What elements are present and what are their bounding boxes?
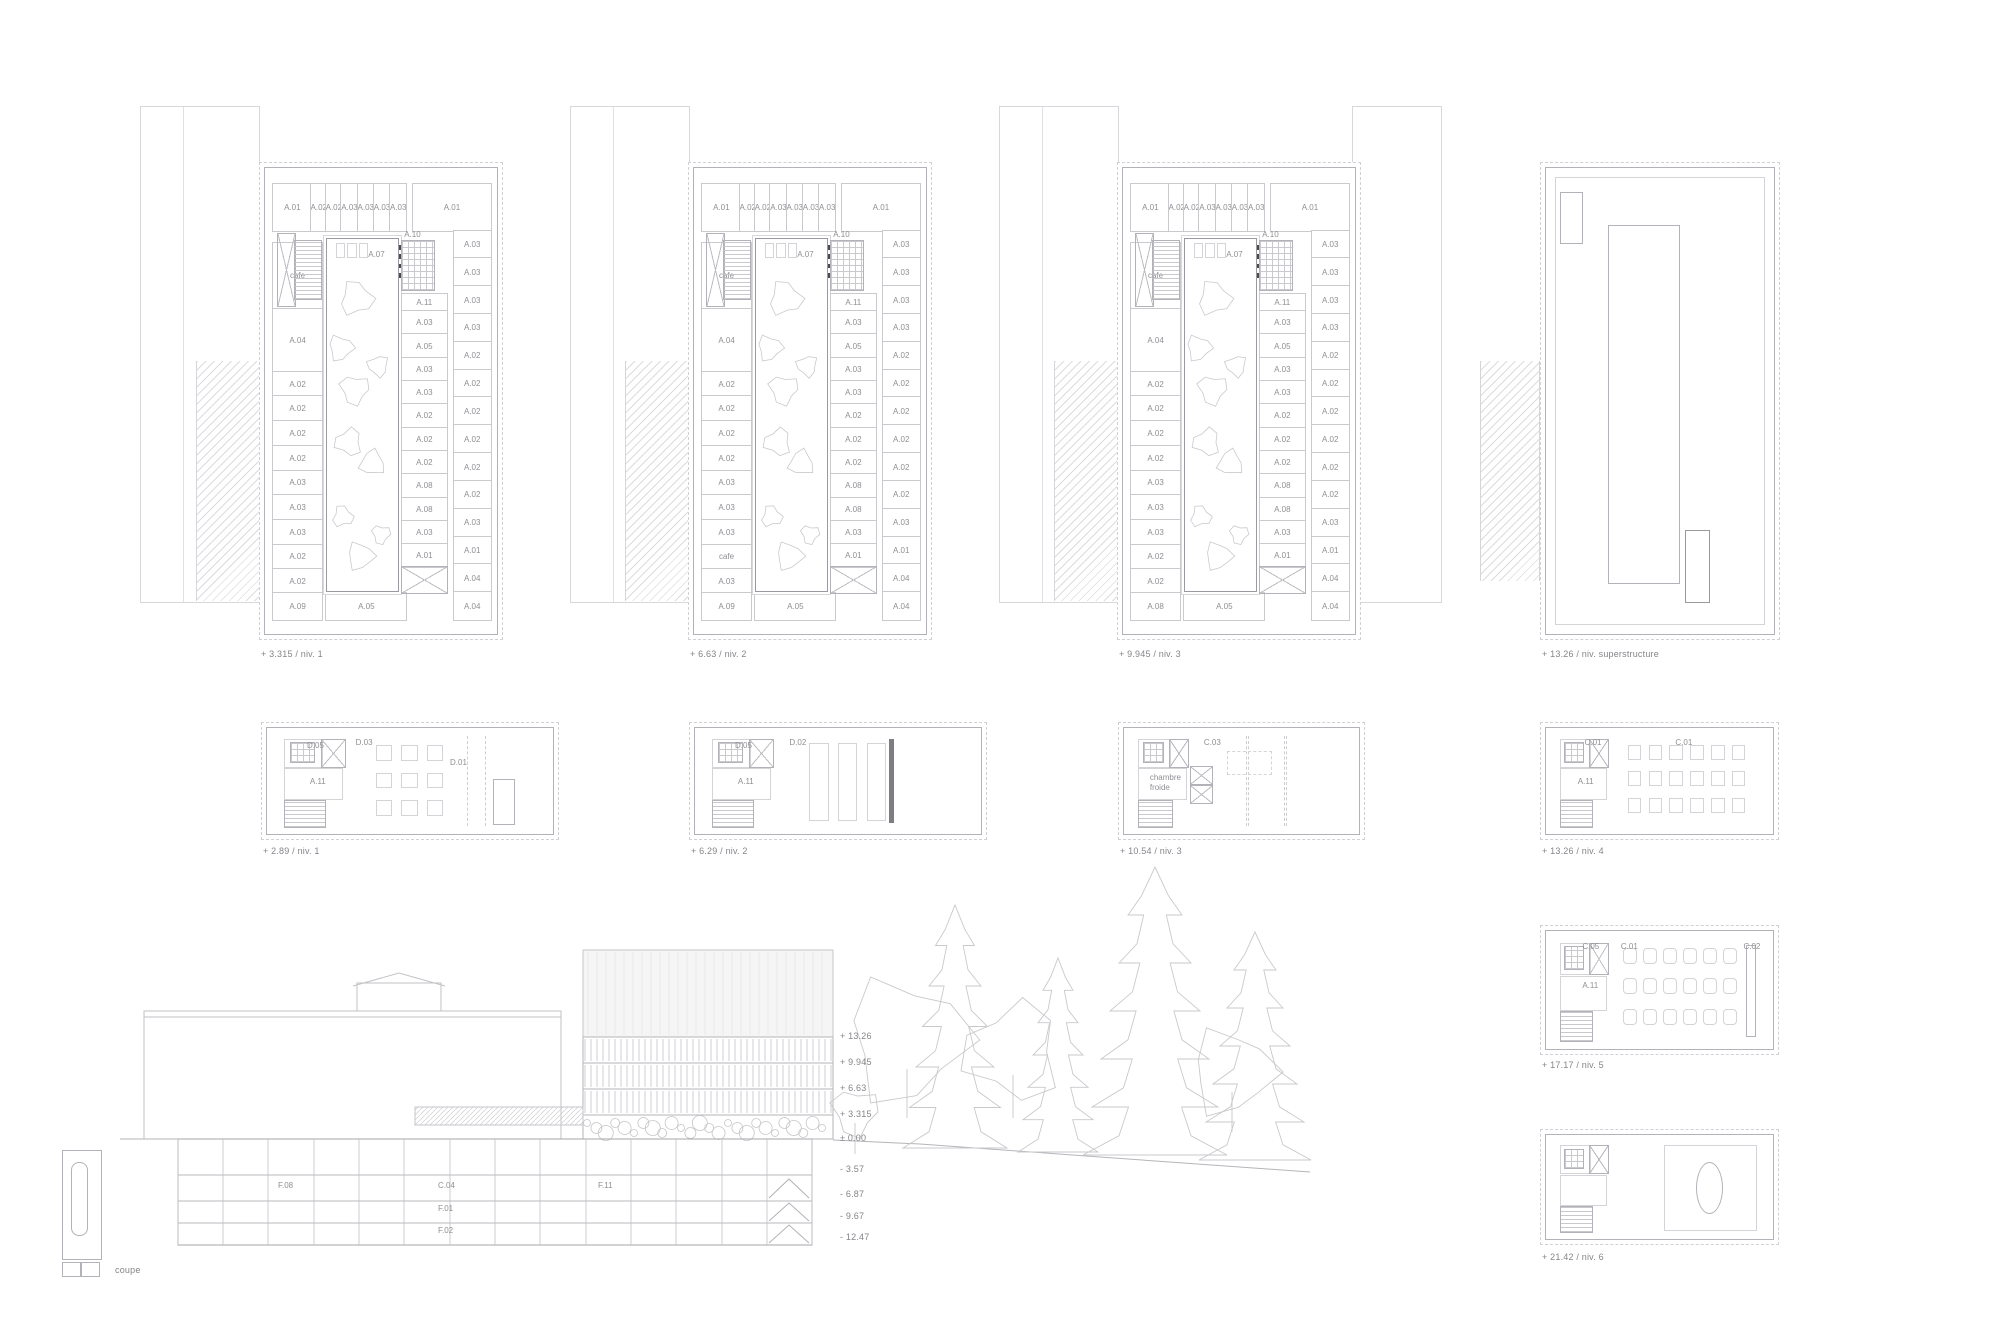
room: A.03 [272, 519, 322, 546]
room: A.03 [1130, 470, 1180, 497]
courtyard-trees [1185, 239, 1256, 591]
room: A.03 [882, 285, 921, 315]
room: A.01 [453, 536, 492, 566]
elevation-mark: + 13.26 [840, 1031, 872, 1041]
room: A.02 [453, 452, 492, 482]
plan-wall: C.05C.01C.02A.11 [1545, 930, 1774, 1050]
plan-wall: D.05D.02A.11 [694, 727, 982, 835]
plan-wall: C.03chambre froide [1123, 727, 1360, 835]
service-shaft [1746, 945, 1756, 1037]
service-shaft [493, 779, 515, 826]
table [1628, 745, 1641, 760]
room: A.02 [882, 369, 921, 399]
plan-caption: + 13.26 / niv. superstructure [1542, 649, 1659, 659]
table [1628, 771, 1641, 786]
basement-grid [178, 1139, 812, 1245]
room: A.03 [1311, 313, 1350, 343]
stair-core [1560, 800, 1594, 827]
room: A.03 [1130, 494, 1180, 521]
roof-courtyard-opening [1608, 225, 1680, 584]
room-label: D.05 [307, 741, 324, 750]
furniture [1194, 243, 1203, 257]
table [1643, 1009, 1657, 1025]
elevator-core [1259, 240, 1293, 291]
shelf [427, 800, 443, 816]
room: A.01 [1311, 536, 1350, 566]
room: A.02 [882, 424, 921, 454]
room: A.04 [272, 308, 322, 373]
room: A.03 [453, 285, 492, 315]
plan-caption: + 13.26 / niv. 4 [1542, 846, 1604, 856]
plan-caption: + 17.17 / niv. 5 [1542, 1060, 1604, 1070]
section-key-cell [62, 1262, 81, 1277]
door-marker [399, 245, 401, 250]
room: A.02 [272, 544, 322, 571]
stair-core [830, 566, 877, 594]
room: A.03 [272, 470, 322, 497]
room-label: C.01 [1585, 738, 1602, 747]
new-building-superstructure [583, 950, 833, 1037]
door-marker [1257, 254, 1259, 259]
plan-wall: C.01C.01A.11 [1545, 727, 1774, 835]
elevator-core [830, 240, 864, 291]
shelf [867, 743, 886, 821]
elevation-mark: ± 0.00 [840, 1133, 866, 1143]
room: A.02 [453, 480, 492, 510]
core-label: A.10 [833, 230, 849, 239]
deciduous-tree [961, 998, 1055, 1101]
room: A.03 [701, 519, 751, 546]
stair-core [723, 240, 751, 300]
plan-caption: + 9.945 / niv. 3 [1119, 649, 1181, 659]
context-hatch [1480, 361, 1540, 581]
furniture [359, 243, 368, 257]
door-marker [828, 245, 830, 250]
room: A.02 [401, 427, 448, 452]
room: A.02 [272, 445, 322, 472]
table [1649, 771, 1662, 786]
table [1643, 978, 1657, 994]
room: A.02 [272, 395, 322, 422]
table [1690, 798, 1703, 813]
room: A.02 [453, 424, 492, 454]
door-marker [1257, 273, 1259, 278]
plan-canvas: D.05D.03A.11D.01 [267, 728, 553, 834]
room: A.02 [882, 396, 921, 426]
shelf [376, 745, 392, 761]
plan-wall: A.01A.02A.02A.03A.03A.03A.03A.01cafeA.04… [264, 167, 498, 635]
room: A.03 [818, 183, 836, 232]
elevator-shaft [749, 739, 774, 769]
shelf [427, 773, 443, 789]
room-label: chambre froide [1150, 773, 1188, 793]
door-marker [1257, 245, 1259, 250]
plan-caption: + 21.42 / niv. 6 [1542, 1252, 1604, 1262]
room: A.02 [830, 403, 877, 428]
duct-zone [467, 736, 486, 825]
door-marker [828, 264, 830, 269]
plan-caption: + 6.63 / niv. 2 [690, 649, 747, 659]
stair-core [1138, 800, 1173, 827]
basement-room-label: F.11 [598, 1181, 613, 1190]
roof-stair-bulkhead [1685, 530, 1710, 603]
plan-canvas: A.01A.02A.02A.03A.03A.03A.03A.01cafeA.04… [265, 168, 497, 634]
table [1723, 1009, 1737, 1025]
room: A.02 [830, 450, 877, 475]
table [1628, 798, 1641, 813]
room: A.01 [272, 183, 312, 232]
table [1669, 771, 1682, 786]
core-plan-niv-6 [1540, 1129, 1779, 1245]
core-label: A.10 [1262, 230, 1278, 239]
table [1711, 745, 1724, 760]
elevator-shaft [1589, 1145, 1609, 1174]
room: A.02 [272, 420, 322, 447]
floor-plan-niv-2: A.01A.02A.02A.03A.03A.03A.03A.01cafeA.04… [688, 162, 932, 640]
table [1732, 798, 1745, 813]
room: A.05 [325, 592, 407, 621]
table [1711, 798, 1724, 813]
cold-room-unit [1190, 785, 1213, 804]
stair-core [1560, 1206, 1594, 1233]
room: A.01 [1270, 183, 1349, 232]
room: A.01 [412, 183, 491, 232]
furniture-grid [1564, 946, 1584, 969]
room: A.02 [1130, 420, 1180, 447]
room: A.03 [401, 310, 448, 335]
table [1703, 1009, 1717, 1025]
grid-line [1284, 736, 1287, 825]
room: A.04 [1311, 591, 1350, 621]
section-key-slot [71, 1162, 88, 1236]
room: A.02 [1311, 369, 1350, 399]
basement-chevrons [769, 1179, 809, 1243]
room: A.04 [1311, 563, 1350, 593]
table [1723, 948, 1737, 964]
plan-wall: A.01A.02A.02A.03A.03A.03A.03A.01cafeA.04… [693, 167, 927, 635]
room: A.04 [882, 591, 921, 621]
context-building-outline [1352, 106, 1442, 603]
elevator-core [401, 240, 435, 291]
elevation-mark: - 6.87 [840, 1189, 864, 1199]
room: A.03 [1311, 257, 1350, 287]
table [1669, 798, 1682, 813]
section-drawing [120, 840, 1360, 1270]
oval-table [1696, 1162, 1723, 1214]
room: A.08 [401, 473, 448, 498]
door-marker [828, 254, 830, 259]
room: A.01 [841, 183, 920, 232]
room: A.09 [701, 592, 751, 621]
room-label: A.11 [738, 777, 754, 786]
core-plan-niv-3: C.03chambre froide [1118, 722, 1365, 840]
furniture-label: A.07 [368, 250, 384, 259]
room: A.03 [882, 313, 921, 343]
room: A.02 [1311, 452, 1350, 482]
core-plan-niv-1: D.05D.03A.11D.01 [261, 722, 559, 840]
room: A.03 [701, 470, 751, 497]
table [1683, 978, 1697, 994]
room-label: D.05 [735, 741, 752, 750]
courtyard [1184, 238, 1257, 592]
room: A.03 [1130, 519, 1180, 546]
room: A.02 [830, 427, 877, 452]
shelf [809, 743, 828, 821]
plan-wall [1545, 1134, 1774, 1240]
layout-dashed [1227, 751, 1271, 774]
room: A.08 [830, 497, 877, 522]
room: A.02 [882, 480, 921, 510]
stair-core [712, 800, 754, 827]
furniture [1205, 243, 1214, 257]
room: A.04 [453, 591, 492, 621]
shelf [401, 773, 417, 789]
table [1703, 948, 1717, 964]
grid-line [1246, 736, 1249, 825]
furniture-grid [1564, 742, 1584, 763]
context-line [1042, 107, 1043, 602]
room: A.03 [453, 230, 492, 260]
core-plan-niv-5: C.05C.01C.02A.11 [1540, 925, 1779, 1055]
room-label: D.01 [450, 758, 467, 767]
room: A.02 [1130, 395, 1180, 422]
plan-wall: D.05D.03A.11D.01 [266, 727, 554, 835]
courtyard-trees [327, 239, 398, 591]
room: A.03 [1259, 357, 1306, 382]
room-label: A.11 [1582, 981, 1598, 990]
core-room [1560, 1175, 1607, 1206]
elevator-shaft [1169, 739, 1190, 769]
room: A.02 [272, 568, 322, 594]
deciduous-tree [854, 977, 980, 1103]
door-marker [399, 254, 401, 259]
room-label: C.01 [1621, 942, 1638, 951]
room: A.02 [1311, 480, 1350, 510]
trees [830, 867, 1311, 1160]
room: A.03 [453, 257, 492, 287]
room: A.02 [701, 395, 751, 422]
room: A.03 [401, 520, 448, 545]
furniture-grid [1143, 742, 1164, 763]
table [1703, 978, 1717, 994]
room: A.05 [830, 333, 877, 358]
room: A.03 [701, 568, 751, 594]
room: A.05 [1183, 592, 1265, 621]
table [1649, 745, 1662, 760]
room: A.02 [453, 369, 492, 399]
table [1690, 771, 1703, 786]
ground-line [120, 1139, 1310, 1172]
room: A.05 [754, 592, 836, 621]
plan-wall: A.01A.02A.02A.03A.03A.03A.03A.01cafeA.04… [1122, 167, 1356, 635]
section-key-cell [81, 1262, 100, 1277]
table [1711, 771, 1724, 786]
room: A.03 [401, 380, 448, 405]
room: A.03 [882, 508, 921, 538]
room: A.02 [453, 341, 492, 371]
stair-core [284, 800, 326, 827]
context-line [613, 107, 614, 602]
furniture-grid [1564, 1149, 1584, 1170]
core-plan-niv-4: C.01C.01A.11 [1540, 722, 1779, 840]
room: A.03 [882, 230, 921, 260]
room: A.02 [1130, 544, 1180, 571]
elevation-mark: + 6.63 [840, 1083, 866, 1093]
room-label: C.01 [1675, 738, 1692, 747]
furniture [765, 243, 774, 257]
furniture [336, 243, 345, 257]
room: A.01 [830, 543, 877, 568]
elevation-mark: + 3.315 [840, 1109, 872, 1119]
conifer-tree [1199, 932, 1311, 1160]
room: A.02 [701, 445, 751, 472]
room: A.02 [1130, 445, 1180, 472]
room: A.03 [830, 357, 877, 382]
room: A.08 [1259, 497, 1306, 522]
room: A.01 [1130, 183, 1170, 232]
furniture [347, 243, 356, 257]
table [1669, 745, 1682, 760]
table [1663, 978, 1677, 994]
conifer-tree [903, 905, 1007, 1148]
room: A.05 [1259, 333, 1306, 358]
room-label: C.02 [1743, 942, 1760, 951]
room: A.03 [830, 380, 877, 405]
shelf [427, 745, 443, 761]
elevation-mark: - 12.47 [840, 1232, 869, 1242]
core-plan-niv-2: D.05D.02A.11 [689, 722, 987, 840]
table [1683, 1009, 1697, 1025]
room: A.08 [830, 473, 877, 498]
room: A.02 [272, 371, 322, 398]
room: A.08 [1130, 592, 1180, 621]
cold-room-unit [1190, 766, 1213, 785]
room: A.03 [830, 310, 877, 335]
table [1683, 948, 1697, 964]
room: A.03 [453, 508, 492, 538]
room-label: A.11 [1578, 777, 1594, 786]
basement-room-label: F.02 [438, 1226, 453, 1235]
door-marker [828, 273, 830, 278]
stair-core [401, 566, 448, 594]
room: A.03 [401, 357, 448, 382]
room: A.03 [882, 257, 921, 287]
table [1732, 771, 1745, 786]
room: A.03 [1247, 183, 1265, 232]
dark-wall [889, 739, 894, 824]
room: A.03 [701, 494, 751, 521]
stair-core [1152, 240, 1180, 300]
courtyard-trees [756, 239, 827, 591]
room: A.03 [389, 183, 407, 232]
room: A.02 [882, 341, 921, 371]
room: A.02 [701, 420, 751, 447]
plan-canvas: A.01A.02A.02A.03A.03A.03A.03A.01cafeA.04… [1123, 168, 1355, 634]
plan-canvas: C.01C.01A.11 [1546, 728, 1773, 834]
door-marker [399, 264, 401, 269]
shelf [838, 743, 857, 821]
plan-canvas [1546, 1135, 1773, 1239]
room-label: A.11 [310, 777, 326, 786]
room: A.02 [1130, 568, 1180, 594]
room: A.03 [272, 494, 322, 521]
elevation-mark: - 3.57 [840, 1164, 864, 1174]
room-label: D.02 [789, 738, 806, 747]
floor-plan-niv-1: A.01A.02A.02A.03A.03A.03A.03A.01cafeA.04… [259, 162, 503, 640]
table [1649, 798, 1662, 813]
shelf [401, 800, 417, 816]
room: A.04 [453, 563, 492, 593]
room: A.03 [830, 520, 877, 545]
table [1623, 978, 1637, 994]
elevator-shaft [321, 739, 346, 769]
architectural-sheet: A.01A.02A.02A.03A.03A.03A.03A.01cafeA.04… [0, 0, 2000, 1333]
table [1690, 745, 1703, 760]
conifer-tree [1018, 958, 1098, 1152]
room: A.01 [401, 543, 448, 568]
context-line [183, 107, 184, 602]
room: A.02 [453, 396, 492, 426]
room: A.04 [882, 563, 921, 593]
stair-core [294, 240, 322, 300]
plan-canvas: D.05D.02A.11 [695, 728, 981, 834]
room: A.01 [882, 536, 921, 566]
furniture [1217, 243, 1226, 257]
furniture [776, 243, 785, 257]
room: A.02 [401, 403, 448, 428]
room: A.02 [1259, 450, 1306, 475]
room: A.03 [1311, 285, 1350, 315]
door-marker [1257, 264, 1259, 269]
context-hatch [625, 361, 689, 601]
room-label: C.03 [1204, 738, 1221, 747]
elevation-mark: + 9.945 [840, 1057, 872, 1067]
room: A.03 [1259, 520, 1306, 545]
stair-core [1259, 566, 1306, 594]
room: A.01 [1259, 543, 1306, 568]
plan-canvas: A.01A.02A.02A.03A.03A.03A.03A.01cafeA.04… [694, 168, 926, 634]
plan-canvas: C.05C.01C.02A.11 [1546, 931, 1773, 1049]
stair-core [1560, 1011, 1594, 1041]
room: A.02 [882, 452, 921, 482]
basement-room-label: F.01 [438, 1204, 453, 1213]
room: A.08 [401, 497, 448, 522]
room: A.03 [1311, 230, 1350, 260]
room: A.02 [1311, 396, 1350, 426]
room: A.03 [1259, 310, 1306, 335]
furniture-label: A.07 [797, 250, 813, 259]
core-label: A.10 [404, 230, 420, 239]
context-hatch [1054, 361, 1118, 601]
room: A.08 [1259, 473, 1306, 498]
floor-plan-niv-3: A.01A.02A.02A.03A.03A.03A.03A.01cafeA.04… [1117, 162, 1361, 640]
shelf [376, 773, 392, 789]
room: A.02 [401, 450, 448, 475]
furniture [788, 243, 797, 257]
room-label: D.03 [356, 738, 373, 747]
room: A.01 [701, 183, 741, 232]
footbridge [415, 1107, 583, 1125]
roof-plan [1540, 162, 1780, 640]
roof-skylight [1560, 192, 1583, 244]
room: A.03 [1311, 508, 1350, 538]
room: A.02 [1311, 341, 1350, 371]
plan-canvas: C.03chambre froide [1124, 728, 1359, 834]
room: A.04 [701, 308, 751, 373]
context-hatch [196, 361, 260, 601]
room: A.05 [401, 333, 448, 358]
room: A.03 [1259, 380, 1306, 405]
